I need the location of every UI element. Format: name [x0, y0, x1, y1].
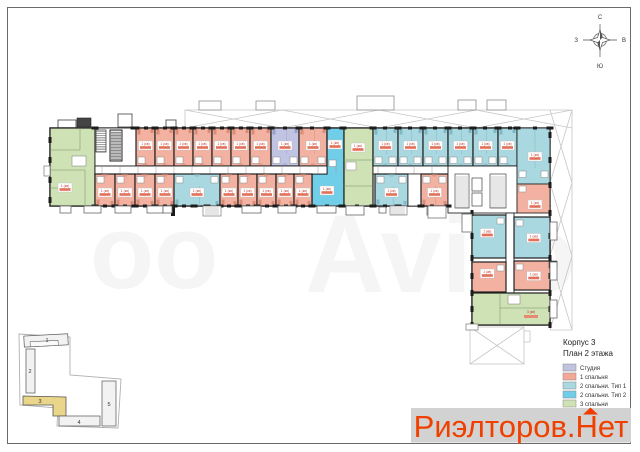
svg-text:1 (кв): 1 (кв)	[161, 189, 169, 193]
svg-text:1 (кв): 1 (кв)	[503, 142, 511, 146]
svg-text:1 (кв): 1 (кв)	[160, 142, 168, 146]
svg-text:3 (кв): 3 (кв)	[527, 310, 535, 314]
svg-text:1 (кв): 1 (кв)	[387, 189, 395, 193]
svg-text:1 (кв): 1 (кв)	[483, 230, 491, 234]
svg-text:1 (кв): 1 (кв)	[531, 153, 539, 157]
svg-text:3 спальни: 3 спальни	[580, 402, 608, 408]
svg-text:План 2 этажа: План 2 этажа	[563, 349, 613, 358]
svg-text:1 (кв): 1 (кв)	[299, 189, 307, 193]
svg-text:1 (кв): 1 (кв)	[121, 189, 129, 193]
svg-text:1 (кв): 1 (кв)	[430, 189, 438, 193]
svg-text:1 (кв): 1 (кв)	[456, 142, 464, 146]
svg-text:3: 3	[38, 399, 41, 405]
svg-text:Ю: Ю	[597, 64, 603, 70]
svg-text:1 (кв): 1 (кв)	[193, 189, 201, 193]
svg-text:2: 2	[28, 369, 31, 375]
svg-text:1 (кв): 1 (кв)	[262, 189, 270, 193]
svg-text:1 (кв): 1 (кв)	[530, 273, 538, 277]
svg-text:Студия: Студия	[580, 366, 600, 372]
svg-text:1 (кв): 1 (кв)	[141, 189, 149, 193]
svg-text:1 (кв): 1 (кв)	[483, 270, 491, 274]
svg-text:Корпус 3: Корпус 3	[563, 338, 596, 347]
svg-text:1 (кв): 1 (кв)	[531, 201, 539, 205]
svg-text:1 (кв): 1 (кв)	[141, 142, 149, 146]
svg-text:1 (кв): 1 (кв)	[323, 187, 331, 191]
svg-text:1 (кв): 1 (кв)	[406, 142, 414, 146]
svg-text:З: З	[574, 38, 578, 44]
svg-text:1 (кв): 1 (кв)	[431, 142, 439, 146]
svg-text:1 (кв): 1 (кв)	[530, 235, 538, 239]
svg-text:1 (кв): 1 (кв)	[354, 144, 362, 148]
svg-text:1 спальня: 1 спальня	[580, 375, 608, 381]
svg-text:2 спальни. Тип 1: 2 спальни. Тип 1	[580, 384, 627, 390]
svg-text:5: 5	[107, 402, 110, 408]
svg-text:1 (кв): 1 (кв)	[243, 189, 251, 193]
svg-text:1 (кв): 1 (кв)	[281, 189, 289, 193]
svg-text:1 (кв): 1 (кв)	[236, 142, 244, 146]
svg-text:1 (кв): 1 (кв)	[198, 142, 206, 146]
svg-text:1 (кв): 1 (кв)	[217, 142, 225, 146]
svg-text:1 (кв): 1 (кв)	[225, 189, 233, 193]
svg-text:1 (кв): 1 (кв)	[256, 142, 264, 146]
svg-text:1 (кв): 1 (кв)	[61, 184, 69, 188]
svg-text:1 (кв): 1 (кв)	[331, 141, 339, 145]
svg-text:4: 4	[77, 420, 80, 426]
svg-text:1 (кв): 1 (кв)	[101, 189, 109, 193]
svg-text:1 (кв): 1 (кв)	[309, 142, 317, 146]
svg-text:1 (кв): 1 (кв)	[481, 142, 489, 146]
svg-text:1: 1	[45, 338, 48, 344]
svg-text:1 (кв): 1 (кв)	[381, 142, 389, 146]
svg-text:2 спальни. Тип 2: 2 спальни. Тип 2	[580, 393, 627, 399]
svg-text:С: С	[598, 15, 603, 21]
svg-text:1 (кв): 1 (кв)	[179, 142, 187, 146]
svg-text:В: В	[622, 38, 626, 44]
svg-text:1 (кв): 1 (кв)	[281, 142, 289, 146]
